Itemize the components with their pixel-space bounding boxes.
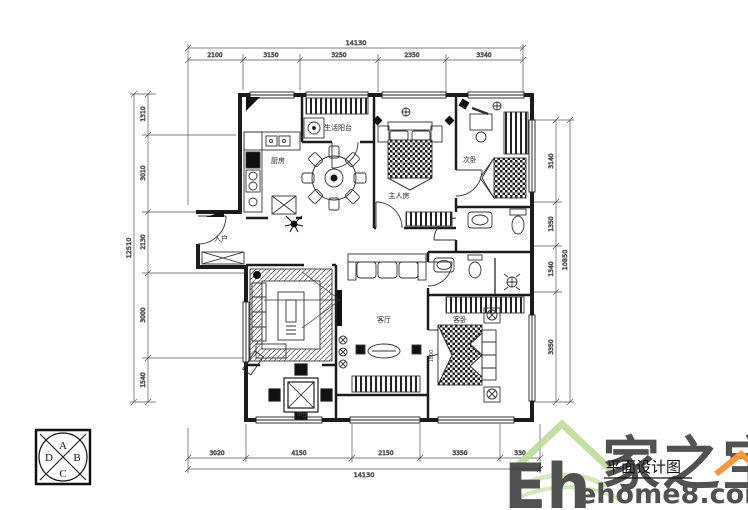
dim-label: 2350	[404, 52, 419, 59]
dim-label: 3350	[548, 339, 555, 354]
entry-hall	[202, 252, 244, 264]
dim-label: 3340	[476, 52, 491, 59]
dim-label: 1310	[140, 106, 147, 121]
dim-right-total: 10850	[561, 250, 569, 271]
room-label-living-room: 客厅	[377, 315, 391, 324]
dimension-left: 1310 3010 2130 3000 1540 12510	[125, 91, 244, 405]
dimension-bottom: 3020 4150 2150 3350 330 14130	[185, 424, 543, 479]
elevation-compass: A B C D	[36, 430, 90, 484]
room-label-kitchen: 厨房	[271, 156, 285, 165]
compass-letter-left: D	[45, 452, 53, 464]
dim-label: 3140	[548, 153, 555, 168]
kitchen	[244, 97, 300, 214]
bathroom-center	[434, 255, 520, 290]
dim-top-total: 14130	[346, 39, 367, 47]
kitchen-corner-mark	[246, 97, 260, 111]
dim-label: 3000	[140, 307, 147, 322]
tea-room	[243, 269, 332, 375]
dim-label: 2130	[140, 234, 147, 249]
bed-width-annotation: 1800	[429, 350, 435, 363]
tv-on-wall	[337, 290, 342, 326]
bathroom-upper	[468, 209, 526, 234]
shower-icon	[504, 274, 520, 290]
dim-label: 3020	[209, 450, 224, 457]
room-label-entry: 入户	[214, 234, 228, 243]
room-label-guest-bedroom: 客卧	[453, 315, 467, 324]
dim-label: 1350	[548, 216, 555, 231]
dim-left-total: 12510	[125, 238, 133, 259]
dim-label: 2150	[378, 450, 393, 457]
corridor-plant	[285, 216, 303, 232]
compass-letter-top: A	[59, 440, 67, 452]
drawing-title: 平面设计图	[604, 458, 692, 478]
balcony-table	[269, 364, 332, 419]
dim-bottom-total: 14130	[354, 471, 375, 479]
dim-label: 3250	[331, 52, 346, 59]
guest-bedroom	[438, 297, 524, 402]
room-label-second-bedroom: 次卧	[463, 155, 477, 164]
dim-label: 2100	[207, 52, 222, 59]
dim-label: 1340	[548, 261, 555, 276]
flower-marks	[339, 336, 347, 368]
drawing-title-text: 平面设计图	[606, 458, 681, 476]
compass-letter-bottom: C	[59, 468, 66, 480]
second-bedroom	[459, 99, 528, 198]
dim-label: 4150	[291, 450, 306, 457]
room-label-service-balcony: 生活阳台	[324, 123, 352, 132]
room-label-master-bedroom: 主人房	[389, 191, 410, 200]
service-balcony	[304, 98, 368, 138]
dimension-right: 3140 1350 1340 3350 10850	[534, 117, 574, 405]
master-bedroom	[373, 108, 455, 226]
room-label-balcony: 阳台	[297, 411, 307, 418]
compass-letter-right: B	[73, 452, 80, 464]
dim-label: 3150	[263, 52, 278, 59]
floor-plan-drawing: 14130 2100 3150 3250 2350 3340 3020 4150…	[0, 0, 748, 510]
floor-plan-sheet: 14130 2100 3150 3250 2350 3340 3020 4150…	[0, 0, 748, 510]
dim-label: 3350	[452, 450, 467, 457]
dim-label: 3010	[140, 165, 147, 180]
dining-round-table	[302, 146, 366, 210]
dim-label: 1540	[140, 372, 147, 387]
watermark-site: ehome8.com	[578, 479, 748, 510]
